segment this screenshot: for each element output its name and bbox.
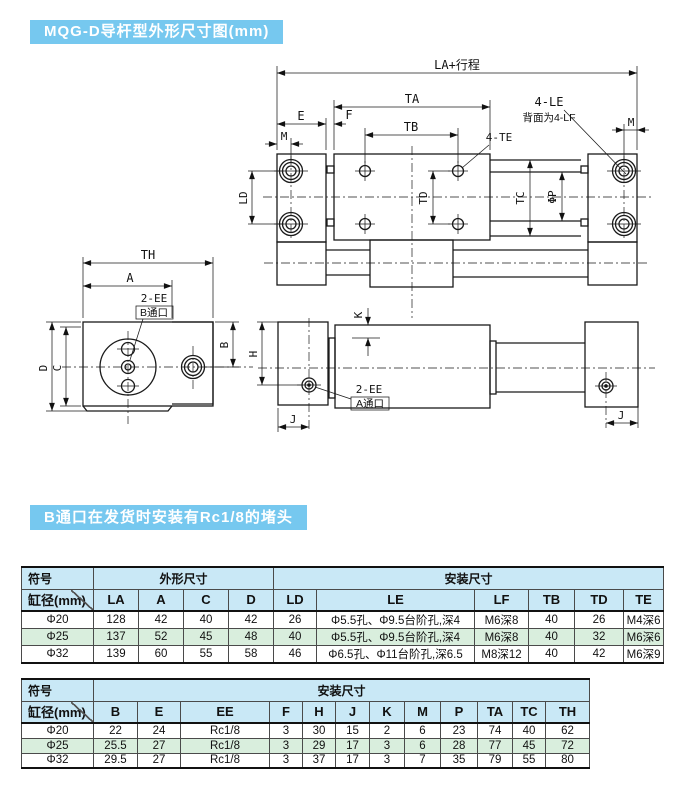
table-cell: 40 [513, 723, 546, 738]
table-header-row: 符号 安装尺寸 [22, 679, 590, 701]
table-cell: 139 [94, 646, 139, 664]
table-cell: 48 [229, 629, 274, 646]
table-cell: Φ20 [22, 611, 94, 629]
callout-port-a: A通口 [356, 398, 384, 410]
symbol-header: 符号 [22, 567, 94, 589]
table-cell: 128 [94, 611, 139, 629]
table-cell: 60 [139, 646, 184, 664]
table-cell: Rc1/8 [181, 753, 270, 768]
column-header: E [138, 701, 181, 723]
column-header: B [94, 701, 138, 723]
table-cell: 27 [138, 738, 181, 753]
table-cell: 42 [229, 611, 274, 629]
title-banner: MQG-D导杆型外形尺寸图(mm) [30, 20, 283, 44]
dim-label-tb: TB [404, 120, 418, 134]
table-cell: 27 [138, 753, 181, 768]
table-cell: 22 [94, 723, 138, 738]
table-cell: 32 [575, 629, 624, 646]
table-cell: 77 [478, 738, 513, 753]
column-header: M [405, 701, 441, 723]
side-view-dimensions: K H J J 2-EE A通口 [247, 308, 638, 432]
column-header: LE [317, 589, 475, 611]
column-header: TE [624, 589, 664, 611]
table-cell: 3 [270, 723, 303, 738]
bore-header: 缸径(mm) [22, 589, 94, 611]
column-header: J [336, 701, 370, 723]
column-header: D [229, 589, 274, 611]
dim-label-la: LA+行程 [434, 57, 480, 72]
column-header: P [441, 701, 478, 723]
dim-label-b: B [218, 341, 231, 348]
dim-label-ta: TA [405, 92, 420, 106]
table-cell: 3 [370, 753, 405, 768]
table-cell: 72 [546, 738, 590, 753]
table-cell: 2 [370, 723, 405, 738]
table-cell: 6 [405, 738, 441, 753]
dim-label-a: A [126, 271, 134, 285]
table-cell: 3 [370, 738, 405, 753]
table-cell: 55 [513, 753, 546, 768]
table-header-row: 符号 外形尺寸 安装尺寸 [22, 567, 664, 589]
column-header: TC [513, 701, 546, 723]
column-header: TB [529, 589, 575, 611]
table-cell: Rc1/8 [181, 738, 270, 753]
table-cell: M6深8 [475, 611, 529, 629]
table-cell: Φ5.5孔、Φ9.5台阶孔,深4 [317, 611, 475, 629]
table-row: Φ25 25.5 27 Rc1/8 3 29 17 3 6 28 77 45 7… [22, 738, 590, 753]
table-cell: 40 [529, 611, 575, 629]
table-cell: 52 [139, 629, 184, 646]
mount-dims-header: 安装尺寸 [274, 567, 664, 589]
table-cell: M6深9 [624, 646, 664, 664]
column-header: H [303, 701, 336, 723]
dim-label-j-right: J [618, 409, 625, 422]
column-header: K [370, 701, 405, 723]
dimension-table-1: 符号 外形尺寸 安装尺寸 缸径(mm) LA A C D LD LE LF TB… [21, 566, 664, 664]
table-cell: 137 [94, 629, 139, 646]
table-cell: M8深12 [475, 646, 529, 664]
table-cell: M4深6 [624, 611, 664, 629]
table-cell: 28 [441, 738, 478, 753]
table-cell: 40 [184, 611, 229, 629]
table-cell: 80 [546, 753, 590, 768]
column-header: LA [94, 589, 139, 611]
callout-4te: 4-TE [486, 131, 513, 144]
top-view-dimensions: LA+行程 TA TB E F M M 4-LE 背面为4-LF 4-TE LD… [237, 57, 649, 236]
table-cell: 58 [229, 646, 274, 664]
table-cell: 45 [513, 738, 546, 753]
outline-dims-header: 外形尺寸 [94, 567, 274, 589]
table-cell: 23 [441, 723, 478, 738]
column-header: TA [478, 701, 513, 723]
table-cell: 46 [274, 646, 317, 664]
callout-2ee-side: 2-EE [356, 383, 383, 396]
table-cell: 62 [546, 723, 590, 738]
callout-4lf-note: 背面为4-LF [522, 111, 575, 124]
table-cell: 24 [138, 723, 181, 738]
column-header: C [184, 589, 229, 611]
column-header: TD [575, 589, 624, 611]
column-header: EE [181, 701, 270, 723]
front-view-dimensions: TH A 2-EE B通口 D C B [37, 248, 239, 411]
dim-label-phi-p: ΦP [546, 190, 559, 204]
column-header: A [139, 589, 184, 611]
table-row: Φ32 139 60 55 58 46 Φ6.5孔、Φ11台阶孔,深6.5 M8… [22, 646, 664, 664]
dim-label-d: D [37, 365, 50, 372]
dim-label-th: TH [141, 248, 155, 262]
table-cell: 30 [303, 723, 336, 738]
table-cell: 35 [441, 753, 478, 768]
catalog-page: MQG-D导杆型外形尺寸图(mm) [0, 0, 680, 785]
top-view-geometry [263, 146, 652, 318]
column-header: LD [274, 589, 317, 611]
dim-label-f: F [345, 108, 352, 122]
table-header-row: 缸径(mm) B E EE F H J K M P TA TC TH [22, 701, 590, 723]
table-cell: 17 [336, 738, 370, 753]
table-cell: Rc1/8 [181, 723, 270, 738]
callout-4le: 4-LE [535, 95, 564, 109]
table-cell: 42 [139, 611, 184, 629]
table-cell: Φ5.5孔、Φ9.5台阶孔,深4 [317, 629, 475, 646]
technical-drawing: LA+行程 TA TB E F M M 4-LE 背面为4-LF 4-TE LD… [0, 44, 680, 500]
symbol-header: 符号 [22, 679, 94, 701]
table-row: Φ32 29.5 27 Rc1/8 3 37 17 3 7 35 79 55 8… [22, 753, 590, 768]
dimension-table-2: 符号 安装尺寸 缸径(mm) B E EE F H J K M P TA TC … [21, 678, 590, 769]
dim-label-m-right: M [628, 116, 635, 129]
table-row: Φ25 137 52 45 48 40 Φ5.5孔、Φ9.5台阶孔,深4 M6深… [22, 629, 664, 646]
callout-port-b: B通口 [140, 307, 168, 319]
dim-label-c: C [51, 365, 64, 372]
table-cell: 26 [575, 611, 624, 629]
table-cell: Φ32 [22, 646, 94, 664]
dim-label-h: H [247, 351, 260, 358]
dim-label-j-left: J [290, 413, 297, 426]
table-cell: Φ6.5孔、Φ11台阶孔,深6.5 [317, 646, 475, 664]
table-cell: 40 [529, 646, 575, 664]
table-cell: 79 [478, 753, 513, 768]
dim-label-td: TD [417, 191, 430, 204]
table-cell: 40 [274, 629, 317, 646]
table-cell: 29.5 [94, 753, 138, 768]
bore-header: 缸径(mm) [22, 701, 94, 723]
table-cell: 3 [270, 753, 303, 768]
column-header: LF [475, 589, 529, 611]
table-cell: M6深8 [475, 629, 529, 646]
table-cell: 3 [270, 738, 303, 753]
table-cell: 6 [405, 723, 441, 738]
table-cell: 17 [336, 753, 370, 768]
callout-2ee-front: 2-EE [141, 292, 168, 305]
dim-label-k: K [352, 311, 365, 318]
table-cell: Φ32 [22, 753, 94, 768]
table-cell: 40 [529, 629, 575, 646]
table-cell: 45 [184, 629, 229, 646]
table-header-row: 缸径(mm) LA A C D LD LE LF TB TD TE [22, 589, 664, 611]
dim-label-e: E [297, 109, 304, 123]
column-header: TH [546, 701, 590, 723]
front-view-geometry [62, 322, 253, 424]
table-cell: 74 [478, 723, 513, 738]
table-cell: M6深6 [624, 629, 664, 646]
table-cell: 37 [303, 753, 336, 768]
table-cell: 42 [575, 646, 624, 664]
table-cell: Φ25 [22, 738, 94, 753]
table-cell: Φ20 [22, 723, 94, 738]
dim-label-m-left: M [281, 130, 288, 143]
table-cell: 29 [303, 738, 336, 753]
table-row: Φ20 22 24 Rc1/8 3 30 15 2 6 23 74 40 62 [22, 723, 590, 738]
table-cell: 25.5 [94, 738, 138, 753]
mount-dims-header: 安装尺寸 [94, 679, 590, 701]
note-banner: B通口在发货时安装有Rc1/8的堵头 [30, 505, 307, 530]
table-cell: 7 [405, 753, 441, 768]
side-view-geometry [258, 318, 655, 432]
table-cell: Φ25 [22, 629, 94, 646]
dim-label-ld: LD [237, 191, 250, 204]
table-cell: 15 [336, 723, 370, 738]
table-cell: 55 [184, 646, 229, 664]
column-header: F [270, 701, 303, 723]
table-cell: 26 [274, 611, 317, 629]
dim-label-tc: TC [514, 191, 527, 204]
table-row: Φ20 128 42 40 42 26 Φ5.5孔、Φ9.5台阶孔,深4 M6深… [22, 611, 664, 629]
